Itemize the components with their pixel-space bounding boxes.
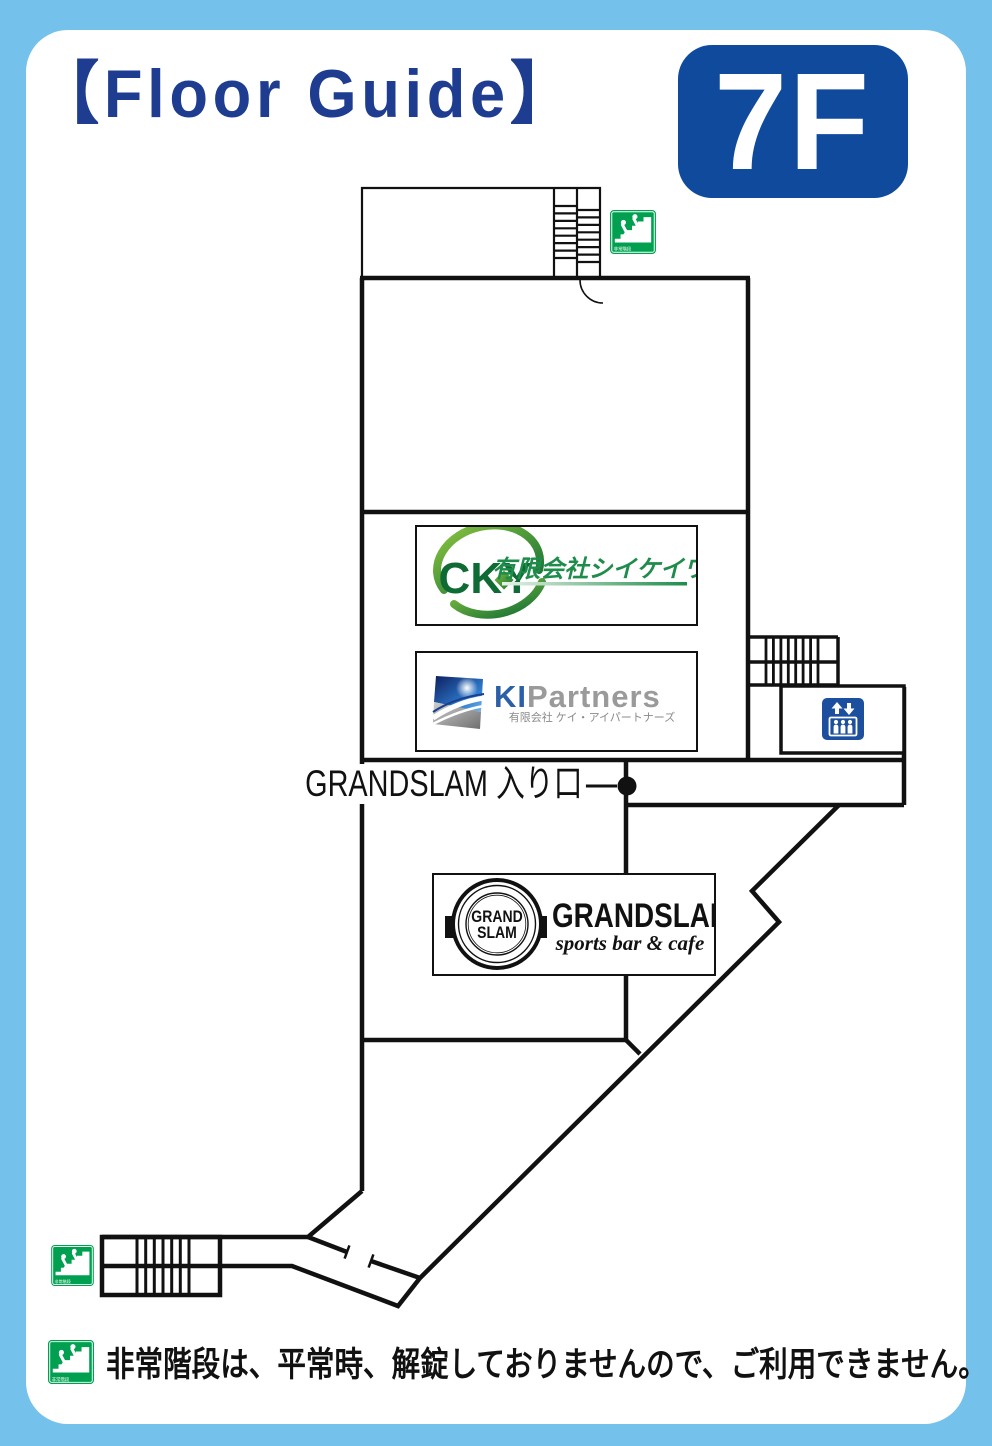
- svg-text:KIPartners: KIPartners: [494, 679, 661, 714]
- grandslam-tagline: sports bar & cafe: [555, 931, 705, 955]
- footer-note: 非常階段は、平常時、解錠しておりませんので、ご利用できません。: [48, 1337, 992, 1386]
- cky-sign: CKY 有限会社シイケイワイ: [415, 525, 698, 626]
- emergency-stairs-icon-bottom: [51, 1245, 94, 1286]
- footer-note-text: 非常階段は、平常時、解錠しておりませんので、ご利用できません。: [106, 1337, 987, 1386]
- grandslam-sign: GRAND SLAM GRANDSLAM sports bar & cafe: [432, 873, 716, 976]
- grandslam-badge-bottom-text: SLAM: [477, 924, 517, 942]
- entrance-dot: [618, 777, 637, 796]
- ki-partners-logo-mark: [433, 676, 484, 729]
- ki-partners-sign: KIPartners 有限会社 ケイ・アイパートナーズ: [415, 651, 698, 752]
- grandslam-badge-icon: GRAND SLAM: [445, 880, 547, 968]
- lower-corridor-wall: [308, 1237, 347, 1252]
- ki-logo-text-primary: KI: [494, 679, 527, 714]
- ki-company-name: 有限会社 ケイ・アイパートナーズ: [509, 710, 676, 724]
- emergency-stairs-icon-note: [48, 1339, 94, 1385]
- right-stairwell: [748, 637, 838, 685]
- grandslam-name: GRANDSLAM: [552, 896, 714, 934]
- top-stairwell: [362, 188, 603, 303]
- floor-guide-poster: { "header": { "title": "【Floor Guide】", …: [0, 0, 992, 1446]
- emergency-stairs-icon-top: [607, 210, 659, 254]
- ki-logo-text-secondary: Partners: [527, 679, 661, 714]
- cky-company-name: 有限会社シイケイワイ: [492, 556, 696, 583]
- entrance-label: GRANDSLAM 入り口: [302, 764, 586, 804]
- elevator-icon: [822, 698, 864, 740]
- elevator-people-icon: [834, 720, 853, 734]
- door-swing-arc: [580, 280, 603, 303]
